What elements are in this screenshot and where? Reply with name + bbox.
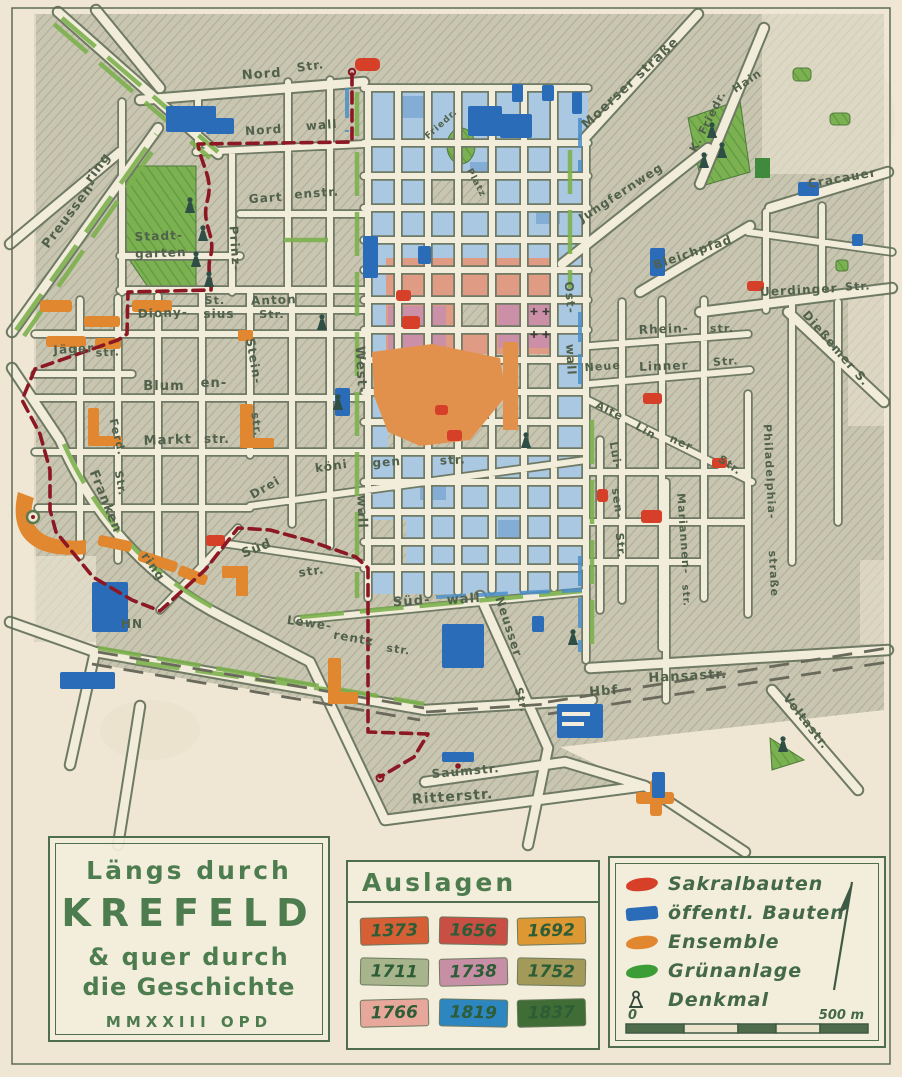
label-westwall: West- bbox=[352, 346, 369, 394]
gruenanlage-swatch bbox=[625, 963, 658, 979]
label-suedwall: Süd- bbox=[392, 593, 431, 611]
auslage-year-1837: 1837 bbox=[517, 998, 586, 1028]
auslage-year-1711: 1711 bbox=[360, 957, 429, 986]
label-blumenstr: Blum bbox=[143, 379, 185, 394]
label-nord-str: Nord bbox=[241, 66, 282, 84]
hauptbahnhof-building bbox=[557, 704, 603, 738]
auslage-year-1738: 1738 bbox=[438, 957, 507, 987]
sakralbauten-swatch bbox=[625, 876, 658, 892]
label-nordwall-2: wall bbox=[305, 117, 338, 133]
label-luisenstr-3: Str. bbox=[613, 532, 629, 559]
label-mariannenstr-2: str. bbox=[679, 584, 692, 607]
oeffentl-bauten-swatch bbox=[625, 905, 658, 921]
auslage-year-1373: 1373 bbox=[360, 916, 429, 946]
auslage-year-1766: 1766 bbox=[360, 998, 429, 1028]
label-suedwall-2: wall bbox=[446, 591, 481, 608]
title-box: Längs durch KREFELD & quer durch die Ges… bbox=[48, 836, 330, 1042]
label-gartenstr: Gart bbox=[248, 190, 283, 206]
label-blumenstr-2: en- bbox=[201, 376, 228, 391]
label-hbf: Hbf bbox=[589, 683, 619, 700]
label-dionysiusstr-2: sius bbox=[203, 307, 234, 321]
auslage-year-1692: 1692 bbox=[517, 916, 586, 946]
scale-bar: 0 500 m bbox=[622, 1006, 874, 1040]
label-rheinstr: Rhein- bbox=[639, 321, 690, 337]
title-credit: MMXXIII OPD bbox=[50, 1013, 328, 1031]
ensemble-swatch bbox=[625, 934, 658, 950]
label-st-anton: St. bbox=[205, 294, 226, 307]
label-dionysiusstr: Diony- bbox=[137, 305, 188, 321]
north-arrow-icon bbox=[818, 872, 862, 996]
krefeld-hand-drawn-map: Nord Str. Nord wall Preussen- ring Prinz… bbox=[0, 0, 902, 1077]
label-nordwall: Nord bbox=[245, 122, 283, 139]
label-marktstr-2: str. bbox=[204, 432, 230, 446]
auslagen-box: Auslagen 1373 1656 1692 1711 1738 1752 1… bbox=[346, 860, 600, 1050]
legend-box: Sakralbauten öffentl. Bauten Ensemble Gr… bbox=[608, 856, 886, 1048]
label-st-anton-2: Anton bbox=[251, 292, 297, 308]
auslagen-year-grid: 1373 1656 1692 1711 1738 1752 1766 1819 … bbox=[348, 903, 598, 1027]
label-neue-linner: Neue bbox=[584, 359, 621, 375]
legend-label-sakralbauten: Sakralbauten bbox=[668, 873, 823, 895]
scale-end-label: 500 m bbox=[819, 1008, 864, 1023]
label-dreikoenigenstr-4: str. bbox=[439, 452, 466, 467]
label-jaegerstr-2: str. bbox=[95, 345, 120, 359]
auslagen-title: Auslagen bbox=[348, 862, 598, 903]
scale-bar-segments bbox=[626, 1024, 868, 1033]
label-neue-linner-3: Str. bbox=[713, 354, 739, 369]
title-line-1: Längs durch bbox=[50, 856, 328, 885]
title-line-3: & quer durch bbox=[50, 943, 328, 971]
label-dreikoenigenstr-3: gen bbox=[372, 454, 401, 470]
label-jaegerstr: Jäger bbox=[52, 341, 94, 357]
label-rheinstr-2: str. bbox=[710, 322, 734, 335]
legend-label-ensemble: Ensemble bbox=[668, 931, 780, 953]
label-marktstr: Markt bbox=[143, 432, 192, 449]
label-ostwall: Ost- bbox=[562, 281, 579, 315]
small-dark-green-area bbox=[755, 158, 770, 178]
auslage-year-1752: 1752 bbox=[517, 957, 586, 986]
label-hn: HN bbox=[121, 617, 143, 631]
title-line-4: die Geschichte bbox=[50, 973, 328, 1001]
auslage-year-1819: 1819 bbox=[438, 998, 507, 1027]
label-westwall-2: wall bbox=[353, 495, 369, 530]
scale-start-label: 0 bbox=[628, 1008, 637, 1023]
label-ostwall-2: wall bbox=[563, 344, 579, 377]
auslage-year-1656: 1656 bbox=[438, 916, 507, 945]
label-neue-linner-2: Linner bbox=[639, 358, 689, 374]
label-stadtgarten: Stadt- bbox=[134, 228, 183, 244]
label-uerdinger-str-2: Str. bbox=[845, 279, 871, 293]
label-stadtgarten-2: garten bbox=[135, 245, 187, 261]
label-st-anton-3: Str. bbox=[259, 308, 285, 321]
title-krefeld: KREFELD bbox=[50, 891, 328, 935]
legend-label-gruenanlage: Grünanlage bbox=[668, 960, 802, 982]
label-philadelphiastr-2: straße bbox=[766, 550, 781, 597]
